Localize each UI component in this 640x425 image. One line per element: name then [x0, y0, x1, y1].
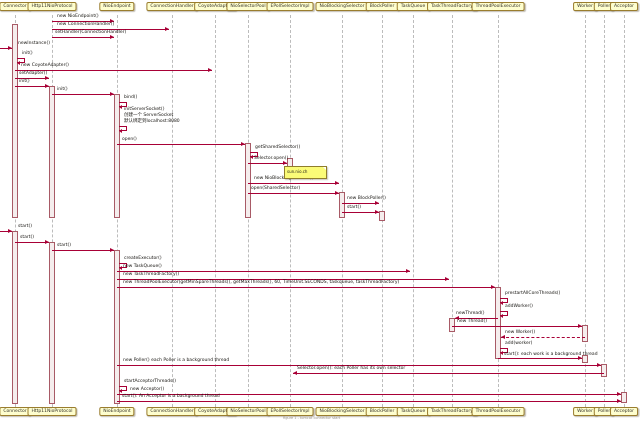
participant-top-threadpoolexecutor: ThreadPoolExecutor: [472, 2, 525, 11]
message-line: [15, 86, 49, 87]
activation-bar: [601, 364, 607, 377]
message-label: open(): [122, 137, 137, 143]
participant-top-connector: Connector: [0, 2, 31, 11]
participant-top-acceptor: Acceptor: [610, 2, 638, 11]
participant-top-blockpoller: BlockPoller: [366, 2, 399, 11]
arrow-head: [617, 392, 621, 396]
activation-bar: [449, 318, 455, 332]
message-label: start(): An Acceptor is a background thr…: [122, 394, 220, 400]
activation-bar: [582, 325, 588, 342]
message-line: [15, 242, 49, 243]
arrow-head: [8, 46, 12, 50]
message-label: start(): [347, 205, 361, 211]
note-sun-nio-ch: sun.nio.ch: [284, 166, 327, 179]
arrow-head: [500, 301, 503, 305]
participant-bottom-connectionhandler: ConnectionHandler: [146, 407, 197, 416]
message-label: prestartAllCoreThreads(): [505, 291, 560, 297]
participant-bottom-nioblockingselector: NioBlockingSelector: [316, 407, 369, 416]
message-label: add(worker): [505, 341, 532, 347]
message-line: [293, 373, 604, 374]
arrow-head: [406, 269, 410, 273]
message-label: new Poller() each Poller is a background…: [123, 358, 229, 364]
arrow-head: [597, 363, 601, 367]
lifeline-coyoteadapter: [215, 15, 216, 407]
arrow-head: [617, 399, 621, 403]
participant-top-taskqueue: TaskQueue: [397, 2, 430, 11]
participant-bottom-nioendpoint: NioEndpoint: [99, 407, 134, 416]
message-line: [342, 203, 379, 204]
message-label: new TaskQueue(): [123, 264, 162, 270]
participant-bottom-http11nioprotocol: Http11NioProtocol: [28, 407, 77, 416]
message-line: [248, 163, 287, 164]
participant-bottom-acceptor: Acceptor: [610, 407, 638, 416]
message-label: init(): [19, 79, 30, 85]
message-label: init(): [57, 87, 68, 93]
message-label: 默认绑定到localhost:8080: [124, 119, 180, 125]
message-line: [498, 358, 582, 359]
message-label: new TaskThreadFactory(): [123, 272, 179, 278]
message-line: [248, 193, 339, 194]
participant-top-connectionhandler: ConnectionHandler: [146, 2, 197, 11]
participant-top-nioblockingselector: NioBlockingSelector: [316, 2, 369, 11]
message-label: new ThreadPoolExecutor(getMinSpareThread…: [123, 280, 399, 286]
message-label: addWorker(): [505, 304, 533, 310]
participant-bottom-threadpoolexecutor: ThreadPoolExecutor: [472, 407, 525, 416]
lifeline-acceptor: [624, 15, 625, 407]
activation-bar: [379, 211, 385, 221]
lifeline-connectionhandler: [172, 15, 173, 407]
message-line: [117, 401, 621, 402]
message-label: start(): [20, 235, 34, 241]
arrow-head: [119, 266, 122, 270]
message-label: bind(): [124, 95, 137, 101]
arrow-head: [119, 105, 122, 109]
message-label: setAdapter(): [19, 71, 47, 77]
arrow-head: [119, 129, 122, 133]
activation-bar: [49, 86, 55, 218]
participant-bottom-connector: Connector: [0, 407, 31, 416]
arrow-head: [45, 240, 49, 244]
activation-bar: [49, 242, 55, 404]
message-label: startAcceptorThreads(): [124, 379, 176, 385]
arrow-head: [241, 142, 245, 146]
activation-bar: [114, 250, 120, 404]
message-line: [52, 37, 114, 38]
arrow-head: [491, 285, 495, 289]
arrow-head: [375, 210, 379, 214]
message-label: newThread(): [456, 311, 485, 317]
arrow-head: [110, 92, 114, 96]
arrow-head: [110, 248, 114, 252]
arrow-head: [335, 181, 339, 185]
arrow-head: [335, 191, 339, 195]
message-label: open(SharedSelector): [251, 186, 300, 192]
participant-top-http11nioprotocol: Http11NioProtocol: [28, 2, 77, 11]
arrow-head: [578, 324, 582, 328]
arrow-head: [8, 229, 12, 233]
message-label: Selector.open(): each Poller has its own…: [297, 366, 405, 372]
message-label: setHandler(ConnectionHandler): [55, 30, 126, 36]
participant-bottom-blockpoller: BlockPoller: [366, 407, 399, 416]
participant-top-nioselectorpool: NioSelectorPool: [226, 2, 269, 11]
participant-bottom-taskthreadfactory: TaskThreadFactory: [427, 407, 477, 416]
activation-bar: [621, 392, 627, 403]
diagram-caption: figure 1 - tomcat connector start: [283, 416, 340, 420]
activation-bar: [114, 94, 120, 218]
message-label: new NioEndpoint(): [57, 14, 99, 20]
message-label: new Acceptor(): [130, 387, 164, 393]
message-label: start(): each work is a background threa…: [504, 352, 598, 358]
lifeline-poller: [604, 15, 605, 407]
message-line: [117, 144, 245, 145]
message-line: [52, 250, 114, 251]
message-line: [117, 287, 495, 288]
message-line: [501, 337, 585, 338]
lifeline-worker: [585, 15, 586, 407]
message-label: newInstance(): [18, 41, 50, 47]
activation-bar: [339, 192, 345, 218]
arrow-head: [17, 61, 20, 65]
arrow-head: [500, 351, 503, 355]
arrow-head: [208, 68, 212, 72]
message-label: start(): [18, 224, 32, 230]
arrow-head: [119, 389, 122, 393]
arrow-head: [45, 84, 49, 88]
message-label: start(): [57, 243, 71, 249]
message-line: [452, 326, 582, 327]
message-label: Selector.open(): [254, 156, 288, 162]
message-line: [52, 94, 114, 95]
activation-bar: [12, 231, 18, 404]
arrow-head: [165, 27, 169, 31]
participant-top-epollselectorimpl: EPollSelectorImpl: [267, 2, 314, 11]
lifeline-taskthreadfactory: [452, 15, 453, 407]
message-label: createExecutor(): [124, 256, 162, 262]
arrow-head: [250, 155, 253, 159]
message-label: new Thread(): [457, 319, 487, 325]
arrow-head: [500, 314, 503, 318]
lifeline-epollselectorimpl: [290, 15, 291, 407]
activation-bar: [12, 24, 18, 218]
participant-bottom-taskqueue: TaskQueue: [397, 407, 430, 416]
message-label: init(): [22, 51, 33, 57]
message-label: new ConnectionHandler(): [57, 22, 114, 28]
message-label: new Worker(): [505, 330, 535, 336]
arrow-head: [445, 277, 449, 281]
message-line: [248, 183, 339, 184]
lifeline-taskqueue: [413, 15, 414, 407]
message-line: [342, 212, 379, 213]
participant-top-taskthreadfactory: TaskThreadFactory: [427, 2, 477, 11]
message-label: new BlockPoller(): [347, 196, 386, 202]
participant-top-nioendpoint: NioEndpoint: [99, 2, 134, 11]
sequence-diagram: ConnectorConnectorHttp11NioProtocolHttp1…: [0, 0, 640, 425]
participant-bottom-nioselectorpool: NioSelectorPool: [226, 407, 269, 416]
message-label: getSharedSelector(): [255, 145, 300, 151]
message-label: new CoyoteAdapter(): [21, 63, 69, 69]
participant-bottom-epollselectorimpl: EPollSelectorImpl: [267, 407, 314, 416]
